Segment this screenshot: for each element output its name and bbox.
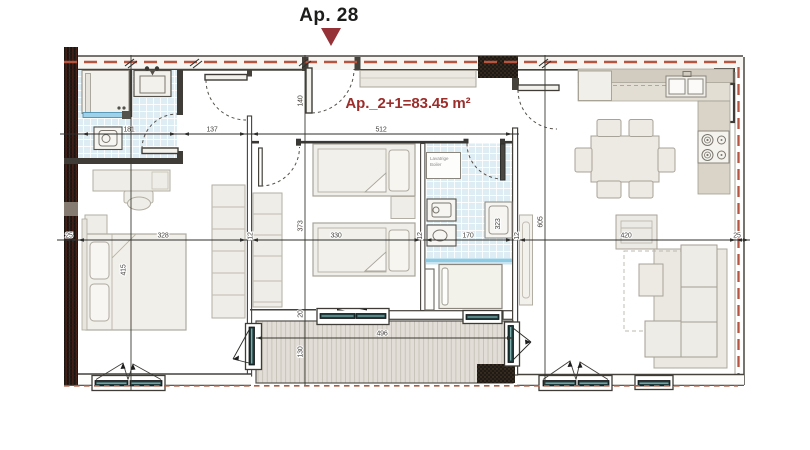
svg-text:12: 12 <box>417 232 424 240</box>
svg-text:496: 496 <box>376 331 387 338</box>
svg-text:181: 181 <box>123 127 134 134</box>
svg-text:25: 25 <box>733 233 741 240</box>
svg-text:Ap._2+1=83.45 m²: Ap._2+1=83.45 m² <box>345 95 470 112</box>
svg-text:170: 170 <box>462 233 473 240</box>
svg-text:415: 415 <box>121 264 128 275</box>
svg-text:Ap. 28: Ap. 28 <box>299 5 358 26</box>
svg-text:373: 373 <box>298 220 305 231</box>
svg-text:420: 420 <box>620 233 631 240</box>
svg-text:Lavatrige: Lavatrige <box>430 156 449 161</box>
svg-text:12: 12 <box>514 232 521 240</box>
svg-text:Boiler: Boiler <box>430 162 442 167</box>
svg-text:330: 330 <box>330 233 341 240</box>
svg-text:12: 12 <box>248 232 255 240</box>
svg-text:512: 512 <box>375 127 386 134</box>
svg-text:25: 25 <box>65 233 73 240</box>
svg-text:137: 137 <box>206 127 217 134</box>
svg-text:140: 140 <box>298 95 305 106</box>
svg-text:323: 323 <box>495 218 502 229</box>
svg-text:328: 328 <box>157 233 168 240</box>
svg-text:130: 130 <box>298 346 305 357</box>
svg-text:20: 20 <box>298 310 305 318</box>
svg-text:605: 605 <box>538 216 545 227</box>
